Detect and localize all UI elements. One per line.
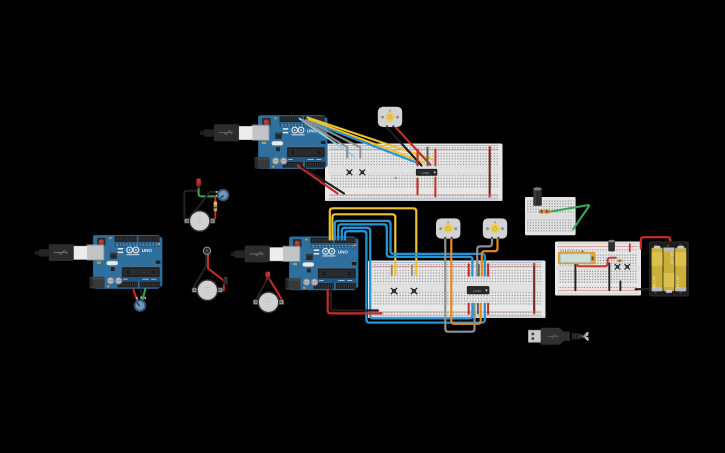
svg-text:AA 1.5V: AA 1.5V [669,252,673,265]
svg-text:L293D: L293D [473,289,481,293]
svg-text:L293D: L293D [422,171,430,175]
svg-text:AA 1.5V: AA 1.5V [653,275,657,288]
svg-text:AA 1.5V: AA 1.5V [676,275,680,288]
